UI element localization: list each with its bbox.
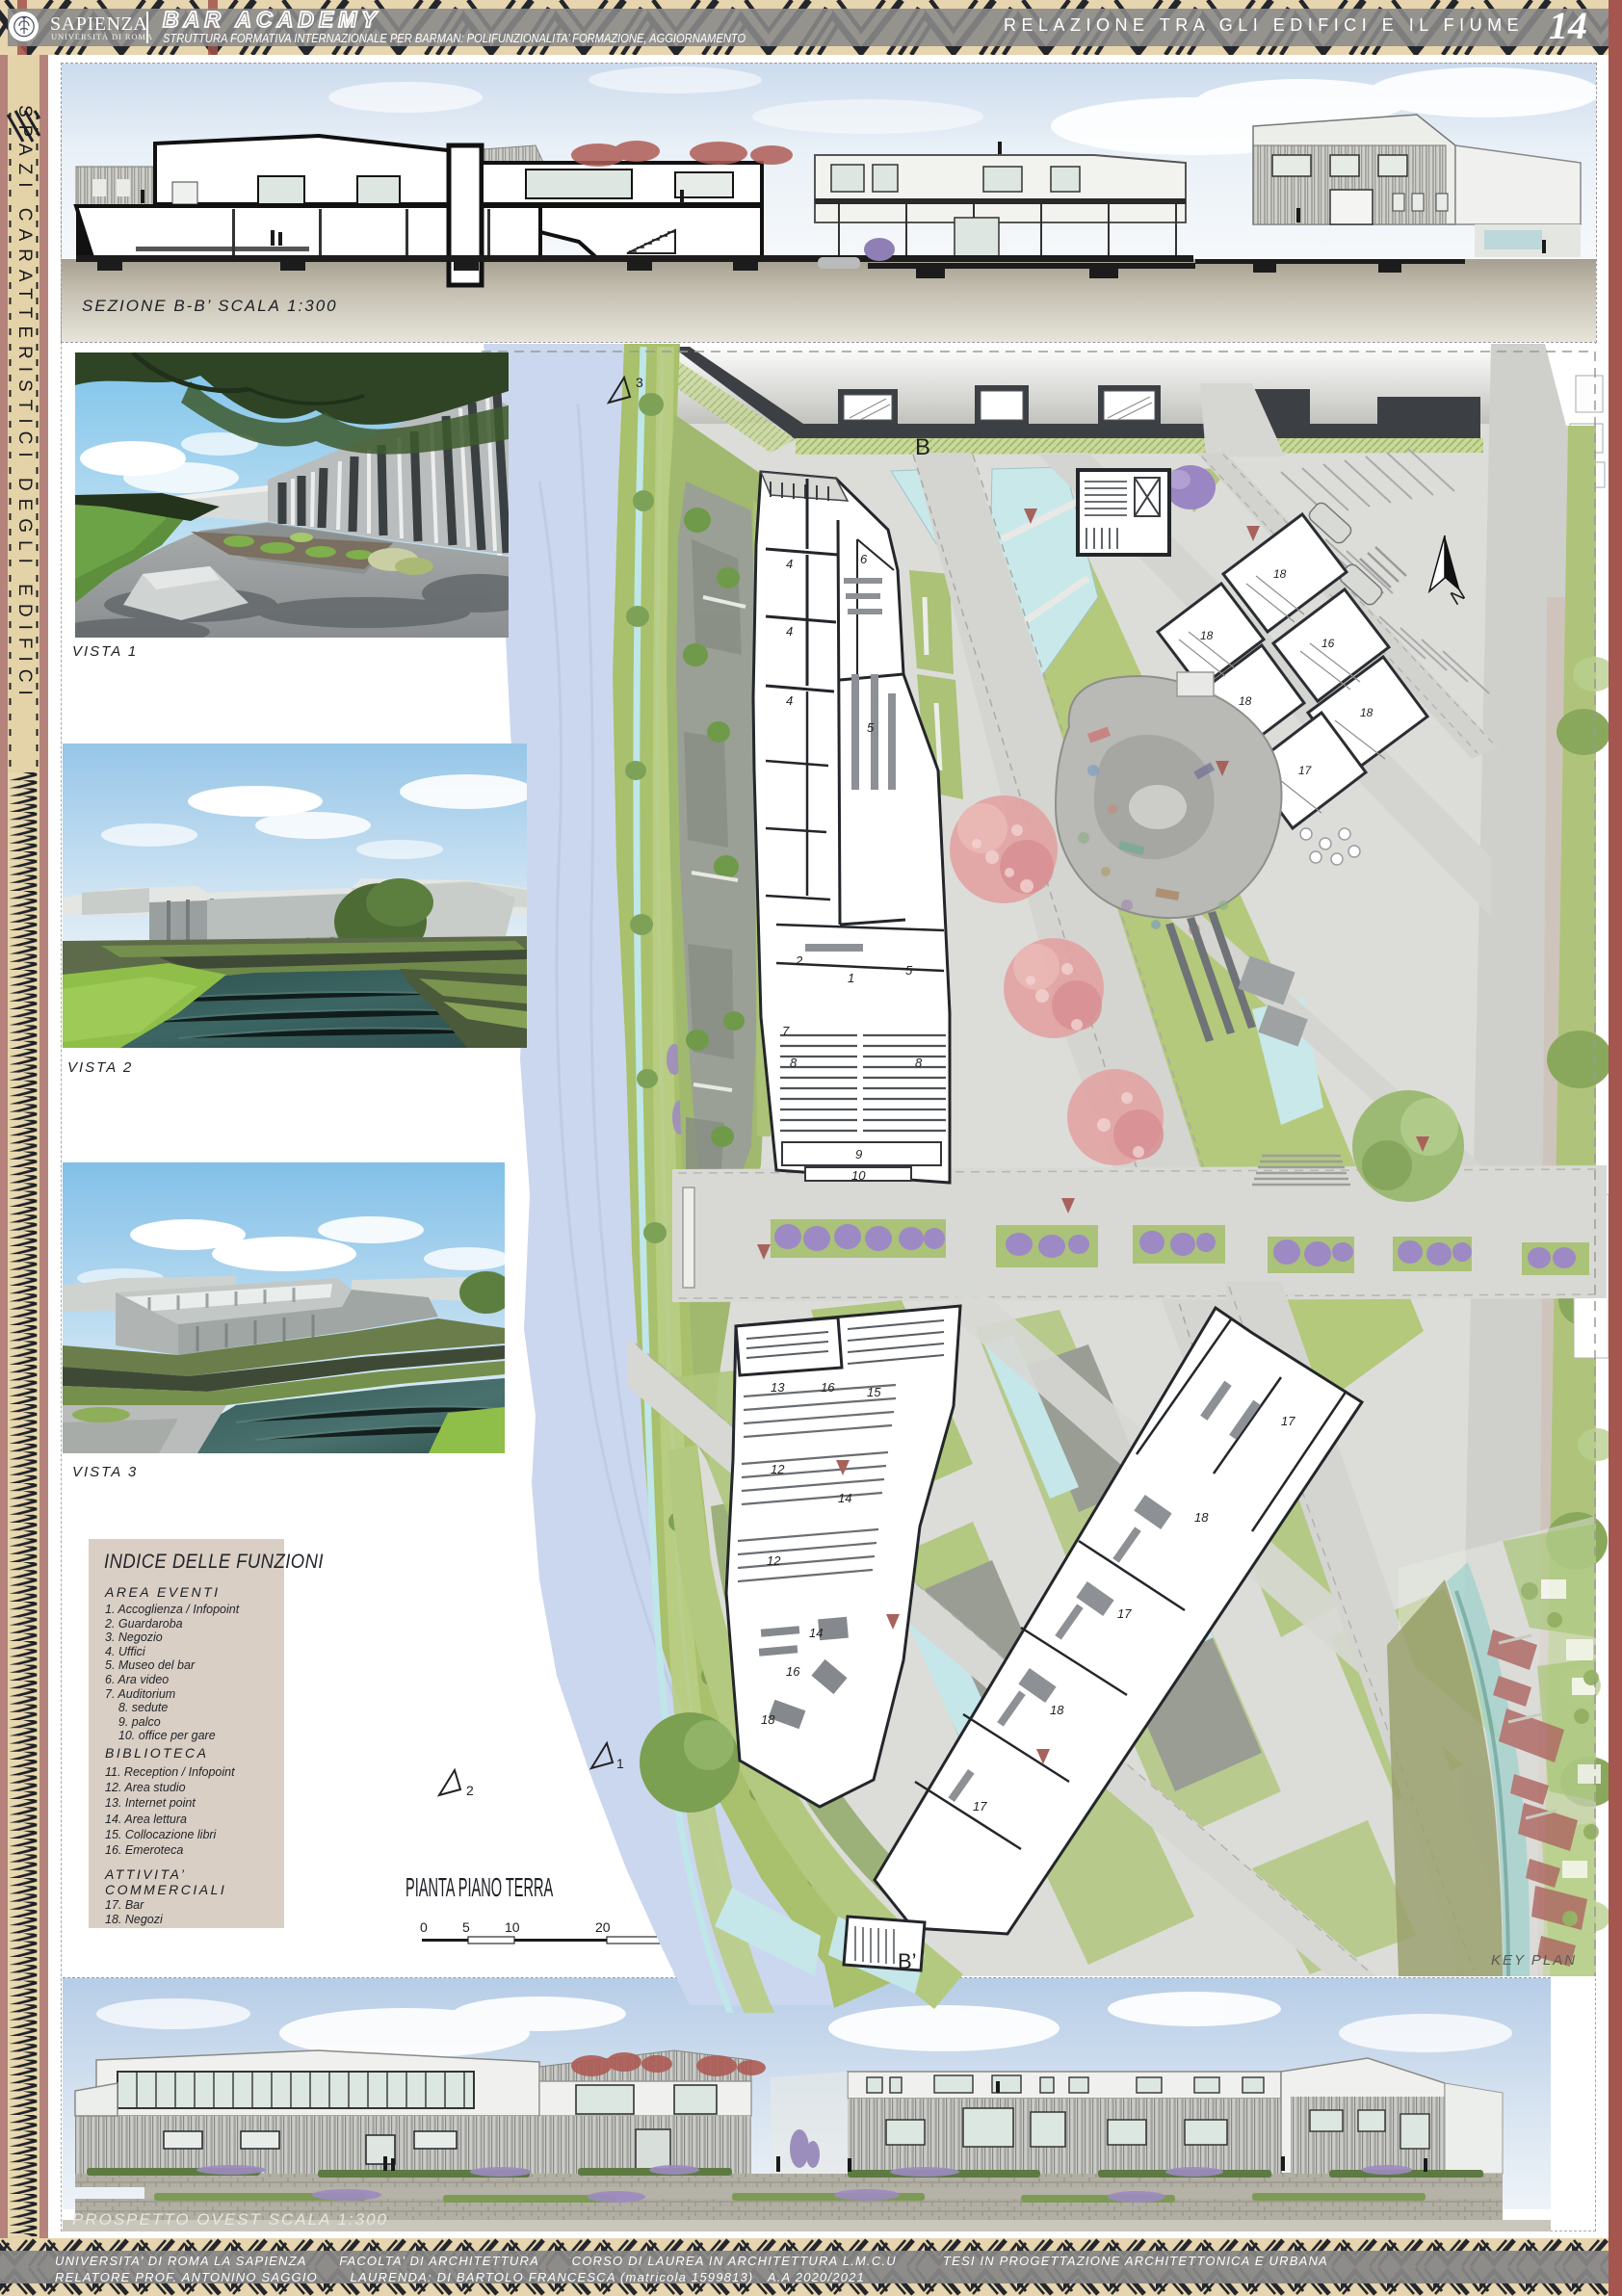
svg-text:2: 2 <box>795 953 803 968</box>
svg-text:16: 16 <box>1321 637 1335 650</box>
svg-text:17: 17 <box>1117 1606 1132 1621</box>
svg-text:18: 18 <box>761 1712 775 1727</box>
svg-text:8: 8 <box>790 1056 798 1070</box>
svg-text:1: 1 <box>848 971 854 985</box>
svg-text:5: 5 <box>905 963 913 978</box>
svg-text:18: 18 <box>1239 694 1252 708</box>
svg-text:16: 16 <box>786 1664 800 1679</box>
svg-text:B: B <box>915 434 930 460</box>
svg-text:17: 17 <box>973 1799 987 1813</box>
svg-text:13: 13 <box>771 1380 785 1395</box>
svg-text:18: 18 <box>1273 567 1287 581</box>
svg-text:1: 1 <box>616 1756 624 1771</box>
svg-text:7: 7 <box>782 1024 790 1038</box>
svg-text:4: 4 <box>786 624 793 639</box>
svg-text:18: 18 <box>1200 629 1214 642</box>
svg-text:8: 8 <box>915 1056 923 1070</box>
svg-text:10: 10 <box>851 1168 866 1183</box>
svg-text:5: 5 <box>867 720 875 735</box>
svg-text:18: 18 <box>1360 706 1373 719</box>
svg-text:4: 4 <box>786 693 793 708</box>
svg-text:KEY PLAN: KEY PLAN <box>1491 1952 1577 1969</box>
svg-text:18: 18 <box>1194 1510 1209 1525</box>
svg-text:14: 14 <box>809 1626 823 1640</box>
svg-text:17: 17 <box>1298 764 1313 777</box>
svg-text:17: 17 <box>1281 1414 1295 1428</box>
svg-text:18: 18 <box>1050 1703 1064 1717</box>
svg-text:B’: B’ <box>898 1949 917 1973</box>
svg-text:6: 6 <box>860 552 868 566</box>
svg-text:4: 4 <box>786 557 793 571</box>
svg-text:9: 9 <box>855 1147 862 1161</box>
svg-text:16: 16 <box>821 1380 835 1395</box>
svg-text:15: 15 <box>867 1385 881 1399</box>
svg-text:12: 12 <box>771 1462 785 1476</box>
svg-text:2: 2 <box>466 1783 474 1798</box>
svg-text:12: 12 <box>767 1553 781 1568</box>
svg-text:14: 14 <box>838 1491 851 1505</box>
svg-text:3: 3 <box>636 375 643 390</box>
